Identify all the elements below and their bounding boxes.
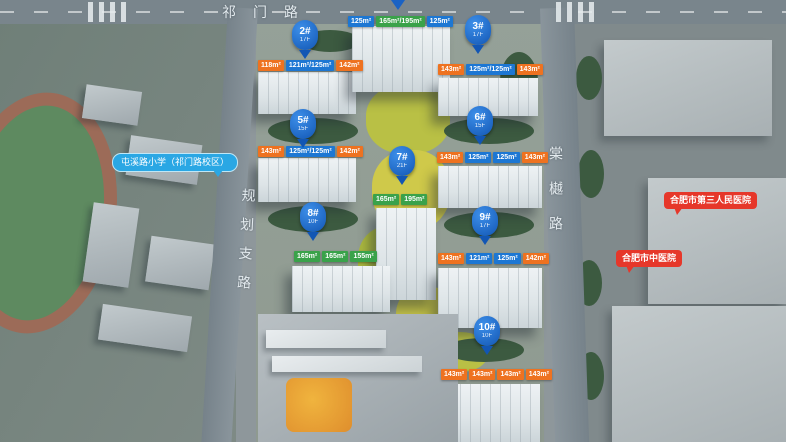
pin-tail bbox=[472, 45, 484, 54]
unit-row-top: 125m² 165m²/195m² 125m² bbox=[348, 16, 453, 27]
pin-number: 10# bbox=[479, 322, 496, 333]
building-pin-9[interactable]: 9# 17F bbox=[472, 206, 498, 245]
pin-head: 8# 10F bbox=[300, 202, 326, 232]
building-pin-6[interactable]: 6# 15F bbox=[467, 106, 493, 145]
kindergarten-roof bbox=[266, 330, 386, 348]
pin-tail bbox=[307, 232, 319, 241]
pin-head: 9# 17F bbox=[472, 206, 498, 236]
pin-tail bbox=[297, 139, 309, 148]
unit-chip: 125m²/125m² bbox=[466, 64, 514, 75]
pin-number: 2# bbox=[299, 26, 310, 37]
unit-chip: 155m² bbox=[350, 251, 376, 262]
unit-chip: 125m² bbox=[427, 16, 453, 27]
hospital-building-roof bbox=[612, 306, 786, 442]
pin-floors: 17F bbox=[473, 32, 483, 39]
unit-row-8: 165m² 165m² 155m² bbox=[294, 251, 377, 262]
unit-chip: 143m² bbox=[438, 64, 464, 75]
site-plan-rendering: 祁门路 规划支路 棠樾路 125m² 165m²/195m² 125m² 118… bbox=[0, 0, 786, 442]
unit-chip: 143m² bbox=[258, 146, 284, 157]
unit-chip: 142m² bbox=[523, 253, 549, 264]
map-pin-tip-cropped[interactable] bbox=[391, 0, 405, 10]
crosswalk bbox=[88, 2, 130, 22]
tree-cluster bbox=[578, 150, 604, 198]
building-pin-2[interactable]: 2# 17F bbox=[292, 20, 318, 59]
unit-chip: 125m² bbox=[493, 152, 519, 163]
pin-head: 10# 10F bbox=[474, 316, 500, 346]
pin-head: 2# 17F bbox=[292, 20, 318, 50]
unit-chip: 125m² bbox=[465, 152, 491, 163]
building-pin-10[interactable]: 10# 10F bbox=[474, 316, 500, 355]
school-callout[interactable]: 屯溪路小学（祁门路校区） bbox=[112, 153, 238, 172]
unit-chip: 143m² bbox=[437, 152, 463, 163]
unit-chip: 143m² bbox=[441, 369, 467, 380]
unit-chip: 165m² bbox=[294, 251, 320, 262]
residential-tower-row-6 bbox=[438, 166, 542, 208]
pin-floors: 15F bbox=[298, 126, 308, 133]
unit-row-6: 143m² 125m² 125m² 143m² bbox=[437, 152, 548, 163]
unit-row-9: 143m² 121m² 125m² 142m² bbox=[438, 253, 549, 264]
pin-head: 7# 21F bbox=[389, 146, 415, 176]
unit-row-10: 143m² 143m² 143m² 143m² bbox=[441, 369, 552, 380]
kindergarten-roof bbox=[272, 356, 422, 372]
pin-floors: 10F bbox=[482, 333, 492, 340]
pin-number: 6# bbox=[474, 112, 485, 123]
hospital-callout-tcm[interactable]: 合肥市中医院 bbox=[616, 250, 682, 267]
pin-number: 9# bbox=[479, 212, 490, 223]
unit-chip: 142m² bbox=[336, 60, 362, 71]
pin-number: 3# bbox=[472, 21, 483, 32]
residential-tower-top bbox=[352, 26, 450, 92]
pin-number: 8# bbox=[307, 208, 318, 219]
unit-chip: 142m² bbox=[337, 146, 363, 157]
building-pin-7[interactable]: 7# 21F bbox=[389, 146, 415, 185]
unit-chip: 143m² bbox=[526, 369, 552, 380]
pin-number: 7# bbox=[396, 152, 407, 163]
pin-number: 5# bbox=[297, 115, 308, 126]
pin-floors: 17F bbox=[300, 37, 310, 44]
pin-tail bbox=[474, 136, 486, 145]
unit-chip: 195m² bbox=[401, 194, 427, 205]
unit-chip: 143m² bbox=[522, 152, 548, 163]
playground bbox=[286, 378, 352, 432]
unit-chip: 165m² bbox=[322, 251, 348, 262]
pin-floors: 21F bbox=[397, 163, 407, 170]
unit-chip: 143m² bbox=[469, 369, 495, 380]
unit-chip: 125m² bbox=[348, 16, 374, 27]
road-label-top: 祁门路 bbox=[222, 2, 315, 22]
building-pin-8[interactable]: 8# 10F bbox=[300, 202, 326, 241]
pin-head: 3# 17F bbox=[465, 15, 491, 45]
building-pin-5[interactable]: 5# 15F bbox=[290, 109, 316, 148]
pin-head: 5# 15F bbox=[290, 109, 316, 139]
unit-chip: 121m² bbox=[466, 253, 492, 264]
pin-tail bbox=[481, 346, 493, 355]
school-building-roof bbox=[145, 236, 215, 290]
unit-row-3: 143m² 125m²/125m² 143m² bbox=[438, 64, 543, 75]
hospital-callout-third-peoples[interactable]: 合肥市第三人民医院 bbox=[664, 192, 757, 209]
unit-row-2: 118m² 121m²/125m² 142m² bbox=[258, 60, 363, 71]
pin-tail bbox=[299, 50, 311, 59]
pin-floors: 10F bbox=[308, 219, 318, 226]
road-label-right: 棠樾路 bbox=[546, 146, 566, 251]
unit-chip: 143m² bbox=[517, 64, 543, 75]
residential-tower-row-2 bbox=[258, 72, 356, 114]
unit-chip: 118m² bbox=[258, 60, 284, 71]
unit-chip: 165m²/195m² bbox=[376, 16, 424, 27]
unit-row-7: 165m² 195m² bbox=[373, 194, 427, 205]
tree-cluster bbox=[576, 56, 602, 100]
pin-tail bbox=[396, 176, 408, 185]
unit-chip: 143m² bbox=[438, 253, 464, 264]
crosswalk bbox=[556, 2, 598, 22]
unit-chip: 125m² bbox=[494, 253, 520, 264]
building-pin-3[interactable]: 3# 17F bbox=[465, 15, 491, 54]
unit-chip: 121m²/125m² bbox=[286, 60, 334, 71]
pin-tail bbox=[479, 236, 491, 245]
residential-tower-row-5 bbox=[258, 158, 356, 202]
hospital-building-roof bbox=[604, 40, 772, 136]
pin-floors: 17F bbox=[480, 223, 490, 230]
unit-chip: 143m² bbox=[497, 369, 523, 380]
pin-head: 6# 15F bbox=[467, 106, 493, 136]
pin-floors: 15F bbox=[475, 123, 485, 130]
residential-tower-row-8 bbox=[292, 266, 390, 312]
unit-chip: 165m² bbox=[373, 194, 399, 205]
